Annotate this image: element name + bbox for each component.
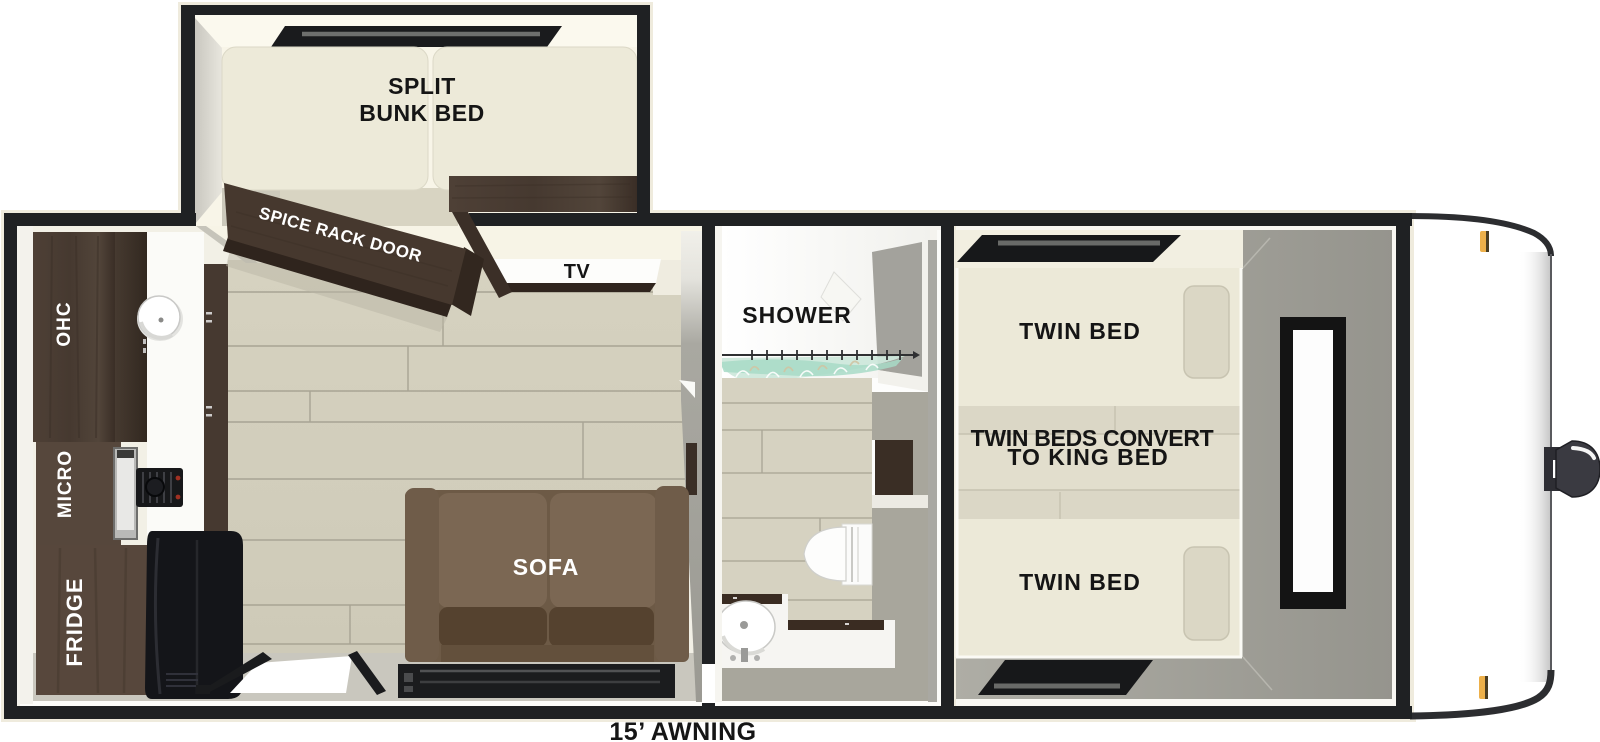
svg-text:TWIN BED: TWIN BED: [1019, 569, 1141, 595]
svg-text:TWIN BED: TWIN BED: [1019, 318, 1141, 344]
svg-text:TV: TV: [564, 261, 591, 283]
svg-text:MICRO: MICRO: [55, 450, 76, 518]
svg-text:FRIDGE: FRIDGE: [62, 577, 87, 666]
svg-text:BUNK BED: BUNK BED: [359, 100, 484, 126]
svg-text:SHOWER: SHOWER: [742, 302, 852, 328]
svg-text:TO KING BED: TO KING BED: [1007, 444, 1168, 470]
svg-text:SOFA: SOFA: [513, 554, 580, 580]
svg-text:15’ AWNING: 15’ AWNING: [609, 718, 756, 742]
svg-text:OHC: OHC: [54, 301, 75, 346]
svg-text:SPLIT: SPLIT: [388, 73, 456, 99]
